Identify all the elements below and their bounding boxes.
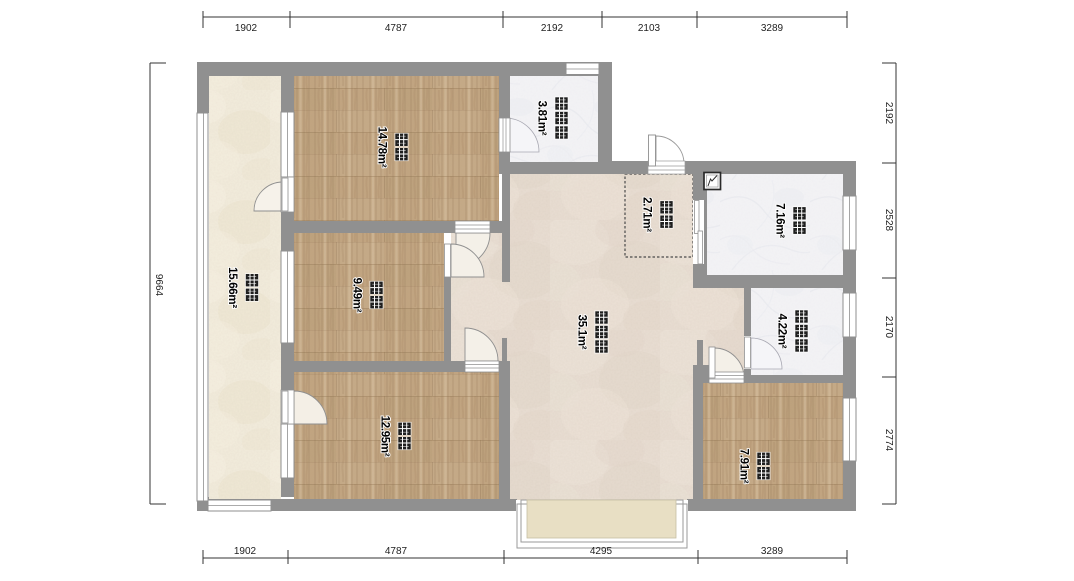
svg-text:9664: 9664 — [153, 274, 164, 297]
svg-text:2528: 2528 — [883, 209, 894, 232]
svg-text:2.71m²: 2.71m² — [641, 197, 653, 232]
svg-text:14.78m²: 14.78m² — [376, 127, 388, 168]
svg-text:2192: 2192 — [883, 102, 894, 125]
svg-text:4787: 4787 — [385, 546, 408, 557]
svg-text:3289: 3289 — [761, 23, 784, 34]
svg-text:7.16m²: 7.16m² — [774, 203, 786, 238]
svg-text:1902: 1902 — [235, 23, 258, 34]
svg-text:4.22m²: 4.22m² — [776, 314, 788, 349]
svg-text:9.49m²: 9.49m² — [351, 278, 363, 313]
svg-text:12.95m²: 12.95m² — [379, 416, 391, 457]
svg-text:15.66m²: 15.66m² — [226, 267, 238, 308]
svg-text:35.1m²: 35.1m² — [576, 315, 588, 350]
svg-text:4295: 4295 — [590, 546, 613, 557]
svg-text:3289: 3289 — [761, 546, 784, 557]
svg-text:1902: 1902 — [234, 546, 257, 557]
svg-text:2170: 2170 — [883, 316, 894, 339]
svg-text:2774: 2774 — [883, 429, 894, 452]
svg-text:2192: 2192 — [541, 23, 564, 34]
svg-text:2103: 2103 — [638, 23, 661, 34]
svg-text:7.91m²: 7.91m² — [738, 449, 750, 484]
svg-text:3.81m²: 3.81m² — [536, 101, 548, 136]
svg-text:4787: 4787 — [385, 23, 408, 34]
